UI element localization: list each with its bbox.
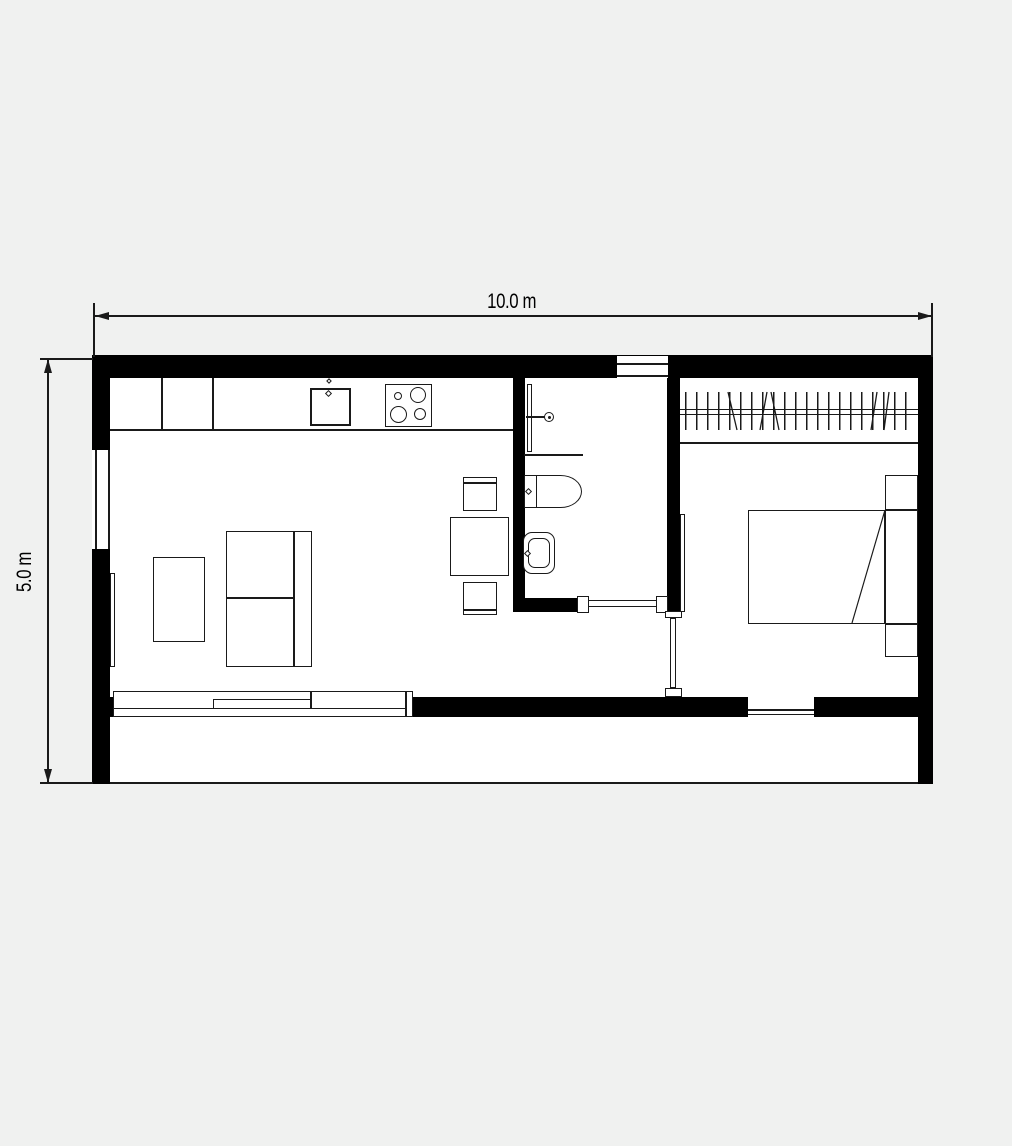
shower-glass-panel (527, 384, 532, 452)
wall-north (92, 355, 933, 378)
kitchen-cabinet-divider (161, 378, 163, 430)
kitchen-counter-edge (110, 429, 513, 431)
sliding-door-panel (213, 699, 311, 709)
bedroom-door-jamb (665, 611, 682, 618)
burner-icon (394, 392, 402, 400)
chair-backrest-line (464, 482, 496, 484)
bedroom-door-jamb (665, 688, 682, 697)
bathroom-wall-south (513, 598, 578, 612)
tv-sideboard-icon (110, 573, 115, 667)
arrow-up-icon (44, 359, 52, 373)
nightstand-divider (885, 509, 918, 511)
sliding-door-panel (311, 691, 407, 709)
arrow-left-icon (95, 312, 109, 320)
dimension-line-height (47, 359, 49, 783)
bathroom-wall-east (667, 378, 680, 618)
coffee-table-icon (153, 557, 205, 642)
window-south-frame (748, 714, 814, 716)
bedroom-door-icon (670, 618, 676, 688)
shower-arm (526, 416, 546, 418)
sofa-icon (226, 531, 312, 667)
dimension-width-label: 10.0 m (452, 290, 572, 314)
burner-icon (390, 406, 407, 423)
window-west-frame (108, 450, 110, 549)
shower-head-dot (548, 416, 551, 419)
burner-icon (410, 387, 426, 403)
kitchen-cabinet-divider (212, 378, 214, 430)
window-west-mullion (95, 450, 97, 549)
window-north-sill (617, 375, 668, 377)
nightstand-divider (885, 623, 918, 625)
toilet-icon (536, 475, 582, 508)
double-bed-icon (748, 510, 885, 624)
sliding-door-rail (405, 691, 407, 717)
wall-west (92, 355, 110, 784)
wardrobe-rail-icon (680, 409, 918, 415)
bathroom-door-icon (588, 600, 657, 607)
burner-icon (414, 408, 426, 420)
wardrobe-edge-line (680, 442, 918, 444)
bedroom-door-open-leaf (680, 514, 685, 612)
sofa-backrest-line (293, 531, 295, 667)
wall-east (918, 355, 933, 784)
sofa-seat-line (226, 597, 294, 599)
window-south-frame (748, 709, 814, 711)
headboard-nightstands (885, 475, 918, 657)
floor-plan-canvas: 10.0 m 5.0 m (0, 0, 1012, 1146)
dimension-line-width (95, 315, 932, 317)
arrow-down-icon (44, 769, 52, 783)
window-north-frame (617, 363, 668, 365)
arrow-right-icon (918, 312, 932, 320)
shower-floor-edge (524, 454, 583, 456)
dining-table-icon (450, 517, 509, 576)
chair-backrest-line (464, 609, 496, 611)
dimension-height-label: 5.0 m (8, 512, 42, 632)
terrace-edge-line (90, 782, 933, 784)
